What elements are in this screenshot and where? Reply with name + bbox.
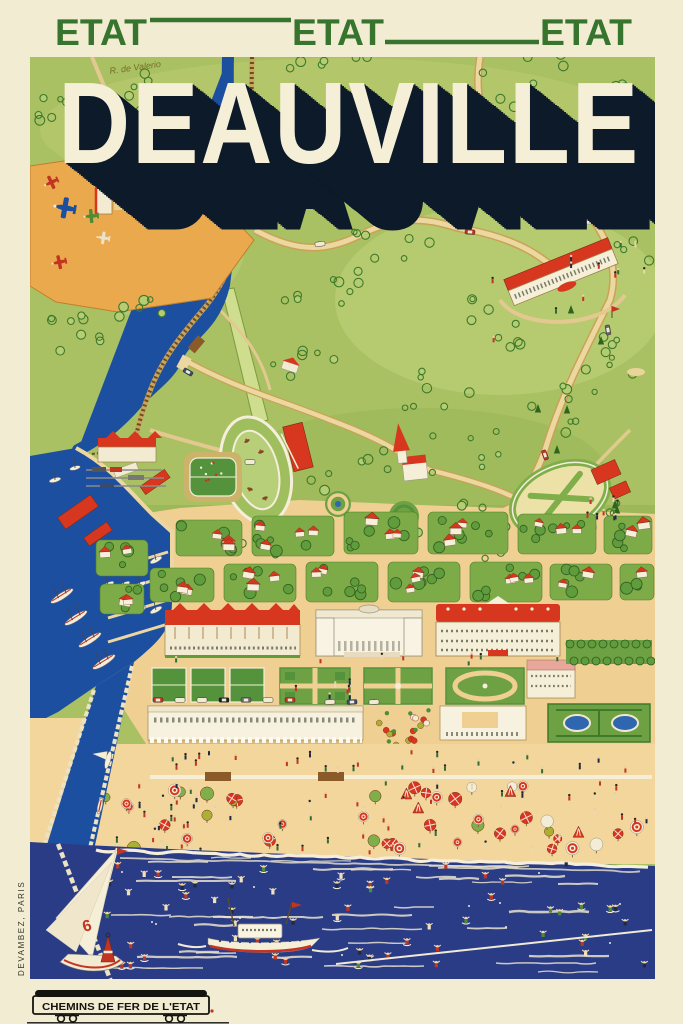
person [195,759,197,766]
town-block [604,516,652,554]
railway-logo-text: CHEMINS DE FER DE L'ETAT [42,1001,201,1013]
oval-garden [446,668,524,704]
person [279,822,281,829]
town-block [550,564,612,600]
header-etat-2: ETAT [292,12,384,53]
person [296,757,298,764]
person [410,748,412,755]
person [309,751,311,758]
person [208,749,210,756]
pink-annex [527,660,575,698]
person [184,753,186,760]
person [229,814,231,821]
person [484,840,486,847]
person [602,509,604,516]
person [368,848,370,855]
person [616,500,618,507]
stadium [184,452,242,502]
person [594,808,596,815]
town-block [176,520,242,556]
person [154,828,156,835]
person [643,267,645,274]
car [175,698,185,703]
person [175,656,177,663]
person [541,767,543,774]
car [153,698,163,703]
person [158,824,160,831]
printer-credit: DEVAMBEZ, PARIS [17,881,26,976]
pier-platform [318,772,344,781]
person [512,761,514,768]
person [193,802,195,809]
person [570,261,572,268]
person [174,815,176,822]
town-block [428,512,508,554]
person [526,753,528,760]
person [634,818,636,825]
person [309,800,311,807]
person [170,804,172,811]
person [235,753,237,760]
person [172,755,174,762]
parterre-garden [364,668,432,704]
person [301,845,303,852]
person [175,782,177,789]
person [645,817,647,824]
person [143,811,145,818]
header-etat-3: ETAT [540,12,632,53]
bath-building [148,706,363,749]
person [570,255,572,262]
person [382,816,384,823]
town-block [344,512,418,554]
person [596,513,598,520]
car [263,698,273,703]
person [198,753,200,760]
person [327,837,329,844]
person [617,268,619,275]
deauville-travel-poster: DEAUVILLE [0,0,683,1024]
car [219,698,229,703]
car [325,699,335,704]
person [430,797,432,804]
person [187,821,189,828]
town-block [306,562,378,602]
bunker [627,368,645,376]
person [598,262,600,269]
person [555,307,557,314]
car [369,699,379,704]
town-block [224,564,296,602]
person [471,783,473,790]
person [477,759,479,766]
person [470,652,472,659]
person [116,836,118,843]
person [190,787,192,794]
person [444,764,446,771]
person [328,692,330,699]
person [614,513,616,520]
person [614,792,616,799]
person [436,751,438,758]
header-band: ETAT ETAT ETAT [0,0,683,57]
person [624,766,626,773]
person [276,844,278,851]
person [492,336,494,343]
person [181,842,183,849]
casino-dome [359,605,379,613]
town-block [150,568,214,602]
person [435,829,437,836]
tennis-courts [152,668,264,702]
person [402,796,404,803]
header-etat-1: ETAT [55,12,147,53]
person [500,805,502,812]
person [356,800,358,807]
person [152,836,154,843]
person [418,841,420,848]
person [589,497,591,504]
person [612,495,614,502]
person [491,277,493,284]
pool [612,715,638,731]
person [348,685,350,692]
person [286,760,288,767]
person [349,678,351,685]
left-margin [0,0,30,1024]
person [325,791,327,798]
person [337,766,339,773]
person [614,271,616,278]
person [556,655,558,662]
person [385,779,387,786]
town-block [252,516,334,557]
town-block [100,584,144,614]
pool [564,715,590,731]
person [521,791,523,798]
person [432,831,434,838]
town-block [620,564,654,600]
pier-platform [205,772,231,781]
person [530,846,532,853]
person [352,765,354,772]
person [615,784,617,791]
town-block [518,514,596,554]
person [468,659,470,666]
person [349,693,351,700]
person [390,844,392,851]
casino [316,605,422,657]
person [310,814,312,821]
car [245,460,255,465]
person [436,782,438,789]
car [197,698,207,703]
person [195,796,197,803]
person [599,779,601,786]
person [568,794,570,801]
pools-garden [548,704,650,742]
beach-pavilion [440,706,526,740]
hotel-normandy [165,603,300,658]
person [621,813,623,820]
person [319,657,321,664]
town-block [388,562,460,602]
person [334,681,336,688]
person [363,806,365,813]
person [357,760,359,767]
person [401,763,403,770]
person [586,511,588,518]
person [138,782,140,789]
person [480,653,482,660]
person [432,766,434,773]
car [347,699,357,704]
person [214,806,216,813]
person [138,802,140,809]
person [183,822,185,829]
person [597,756,599,763]
person [387,824,389,831]
person [325,765,327,772]
person [594,792,596,799]
person [501,790,503,797]
person [162,795,164,802]
hotel-royal [436,596,560,656]
person [582,294,584,301]
car [241,698,251,703]
person [175,763,177,770]
person [402,654,404,661]
car [285,698,295,703]
person [558,833,560,840]
person [170,815,172,822]
town-block [96,540,148,576]
person [579,763,581,770]
title [58,58,640,188]
person [362,832,364,839]
person [176,798,178,805]
person [295,685,297,692]
town-block [470,562,542,602]
person [161,840,163,847]
right-margin [655,0,683,1024]
poster-artwork: DEAUVILLE [0,0,683,1024]
person [381,653,383,660]
